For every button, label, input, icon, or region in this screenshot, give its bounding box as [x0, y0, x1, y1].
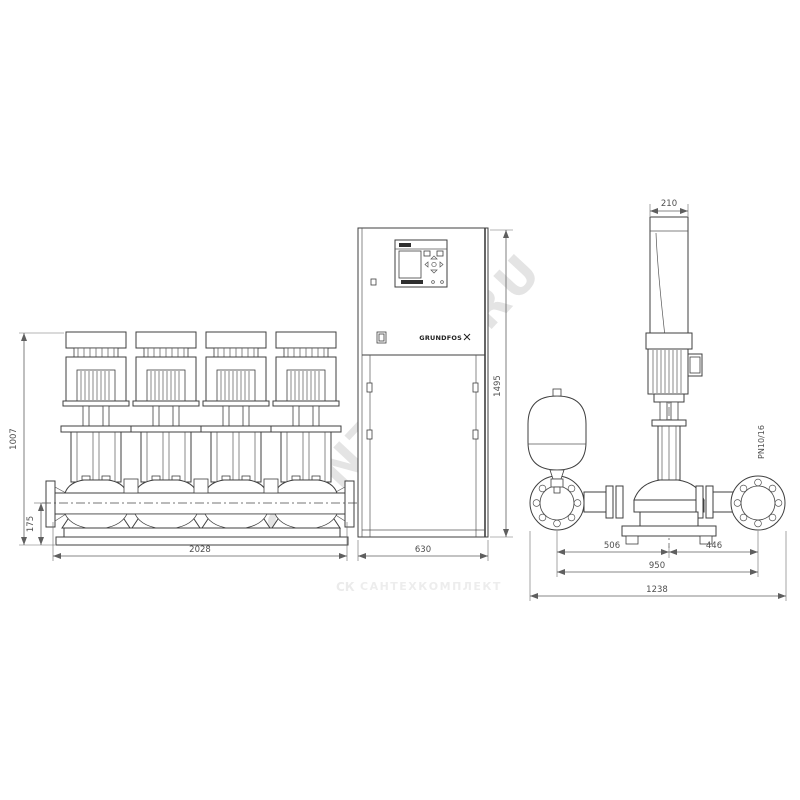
- dim-top-width-label: 210: [661, 199, 677, 209]
- dim-cabinet-width-label: 630: [415, 545, 431, 555]
- tank-air-valve: [553, 389, 561, 396]
- dim-total-depth-label: 1238: [646, 585, 668, 595]
- manifold-stub: [264, 479, 278, 493]
- watermark-footer-logo: СК: [336, 580, 355, 594]
- panel-logo-chip: [399, 243, 411, 247]
- motor-top: [646, 333, 692, 349]
- pump-sleeve: [650, 217, 688, 333]
- door-lock-icon: [371, 279, 376, 285]
- manifold-pipe: [55, 493, 345, 514]
- motor-body: [648, 349, 688, 394]
- dim-right-offset-label: 446: [706, 541, 722, 551]
- dim-total-height-label: 1007: [9, 428, 19, 450]
- dim-total-width-label: 2028: [189, 545, 211, 555]
- dim-manifold-height-label: 175: [26, 516, 36, 532]
- manifold-stub: [124, 479, 138, 493]
- side-view: PN10/16: [528, 217, 785, 548]
- diaphragm-tank: [528, 389, 586, 493]
- base-frame-upper: [64, 528, 340, 537]
- control-panel: [395, 240, 447, 287]
- dim-cabinet-height-label: 1495: [493, 375, 503, 397]
- panel-button: [437, 251, 443, 256]
- panel-display: [399, 251, 421, 278]
- counter-flange-right: [731, 476, 785, 530]
- hinge: [473, 383, 478, 392]
- watermark-footer: СК САНТЕХКОМПЛЕКТ: [336, 580, 502, 594]
- technical-drawing-page: SANTECH.RU СК САНТЕХКОМПЛЕКТ: [0, 0, 800, 800]
- dim-left-offset-label: 506: [604, 541, 620, 551]
- hinge: [367, 383, 372, 392]
- pump-volute: [634, 480, 704, 500]
- booster-set-drawing: SANTECH.RU СК САНТЕХКОМПЛЕКТ: [0, 0, 800, 800]
- flange-rating-label: PN10/16: [757, 425, 766, 459]
- hinge: [367, 430, 372, 439]
- hinge: [473, 430, 478, 439]
- manifold-stub: [194, 479, 208, 493]
- tank-valve: [551, 479, 563, 487]
- base-plate: [622, 526, 716, 536]
- panel-button: [424, 251, 430, 256]
- watermark-footer-text: САНТЕХКОМПЛЕКТ: [360, 580, 502, 593]
- foot: [626, 536, 638, 544]
- panel-brand-strip: [401, 280, 423, 284]
- front-view: [42, 332, 358, 545]
- brand-logo-text: GRUNDFOS: [419, 334, 462, 342]
- dim-port-span-label: 950: [649, 561, 665, 571]
- door-handle-inner: [379, 334, 384, 341]
- pedestal: [640, 512, 698, 526]
- control-cabinet: GRUNDFOS: [358, 228, 488, 537]
- base-frame-lower: [56, 537, 348, 545]
